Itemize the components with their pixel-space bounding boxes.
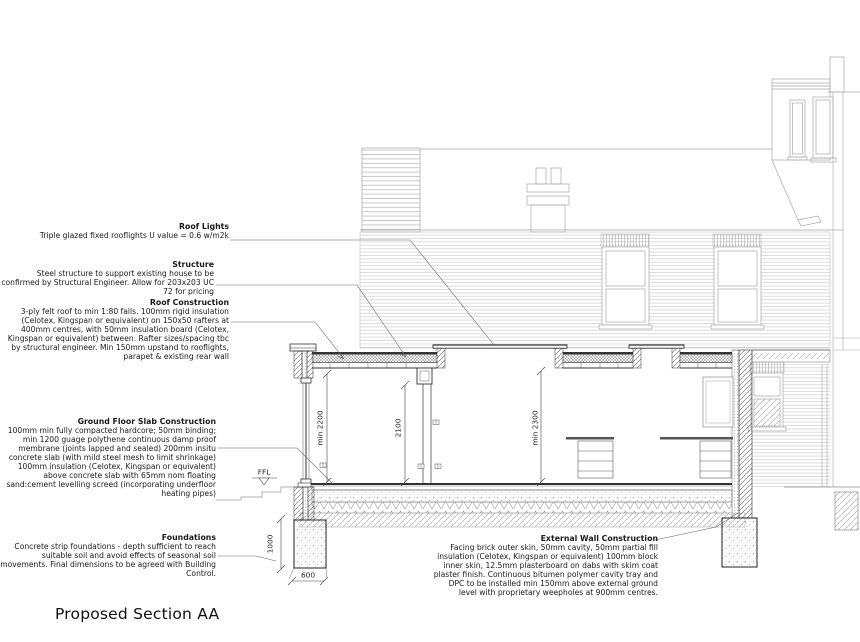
annotation-roof-lights: Roof Lights Triple glazed fixed roofligh… — [0, 222, 229, 240]
annotation-body: Triple glazed fixed rooflights U value =… — [0, 231, 229, 240]
rooflight-1 — [433, 345, 567, 368]
annotation-body: 3-ply felt roof to min 1:80 falls. 100mm… — [0, 307, 229, 361]
annotation-ground-floor-slab: Ground Floor Slab Construction 100mm min… — [0, 417, 216, 498]
annotation-external-wall: External Wall Construction Facing brick … — [430, 534, 658, 597]
dim-foundation-width: 600 — [301, 571, 315, 580]
annotation-title: Roof Construction — [0, 298, 229, 307]
kitchen-units — [566, 377, 733, 478]
annotation-title: Structure — [0, 260, 214, 269]
ground-floor-slab — [300, 483, 745, 527]
page-title: Proposed Section AA — [55, 605, 219, 623]
annotation-title: Roof Lights — [0, 222, 229, 231]
annotation-title: Ground Floor Slab Construction — [0, 417, 216, 426]
annotation-body: Concrete strip foundations - depth suffi… — [0, 542, 216, 578]
dim-opening-height: 2100 — [394, 419, 403, 438]
annotation-structure: Structure Steel structure to support exi… — [0, 260, 214, 296]
annotation-roof-construction: Roof Construction 3-ply felt roof to min… — [0, 298, 229, 361]
flat-roof — [312, 352, 732, 368]
annotation-body: Steel structure to support existing hous… — [0, 269, 214, 296]
annotation-body: Facing brick outer skin, 50mm cavity, 50… — [430, 543, 658, 597]
dim-rear-ceiling-height: min 2300 — [531, 410, 540, 445]
existing-house-elevation — [216, 57, 860, 530]
drawing-sheet: Roof Lights Triple glazed fixed roofligh… — [0, 0, 860, 642]
dim-ceiling-height: min 2200 — [316, 410, 325, 445]
rooflight-2 — [629, 345, 684, 368]
dim-foundation-depth: 1000 — [266, 535, 275, 554]
ffl-marker — [252, 478, 277, 485]
annotation-title: Foundations — [0, 533, 216, 542]
steel-beam — [417, 368, 432, 384]
rear-wall-section — [732, 350, 739, 518]
annotation-foundations: Foundations Concrete strip foundations -… — [0, 533, 216, 578]
annotation-body: 100mm min fully compacted hardcore; 50mm… — [0, 426, 216, 498]
annotation-title: External Wall Construction — [430, 534, 658, 543]
ffl-label: FFL — [258, 468, 271, 477]
foundation-left — [294, 520, 326, 568]
foundation-right — [722, 518, 757, 567]
